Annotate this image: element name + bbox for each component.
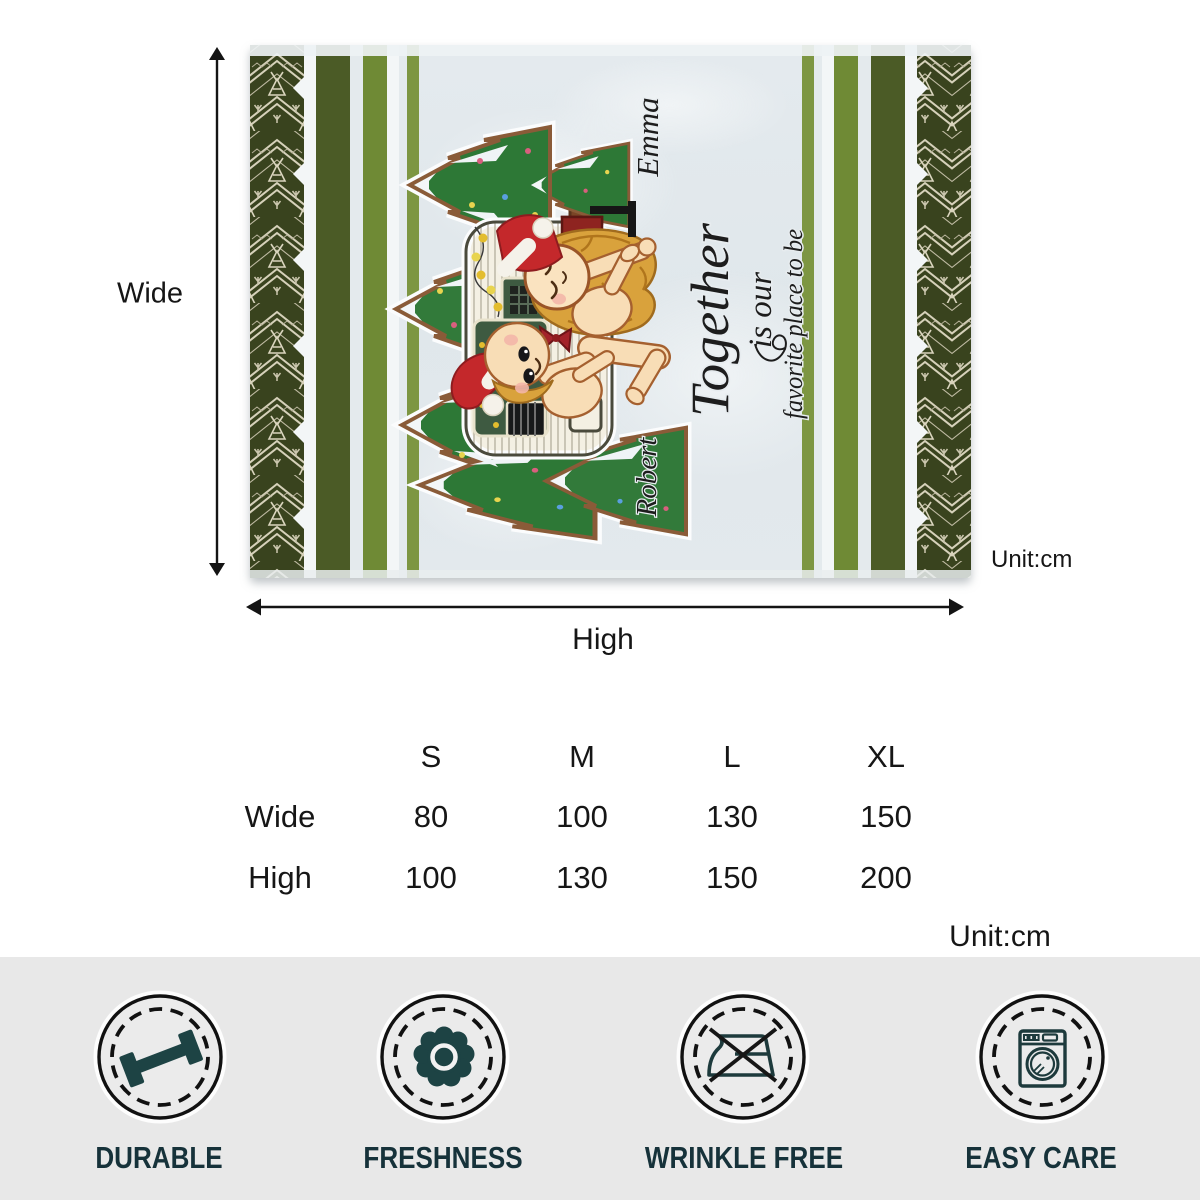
svg-text:is our: is our: [743, 272, 779, 348]
svg-text:Robert: Robert: [631, 437, 663, 518]
svg-text:favorite place to be: favorite place to be: [779, 229, 808, 419]
svg-text:Emma: Emma: [630, 97, 665, 177]
svg-text:Together: Together: [680, 222, 740, 417]
